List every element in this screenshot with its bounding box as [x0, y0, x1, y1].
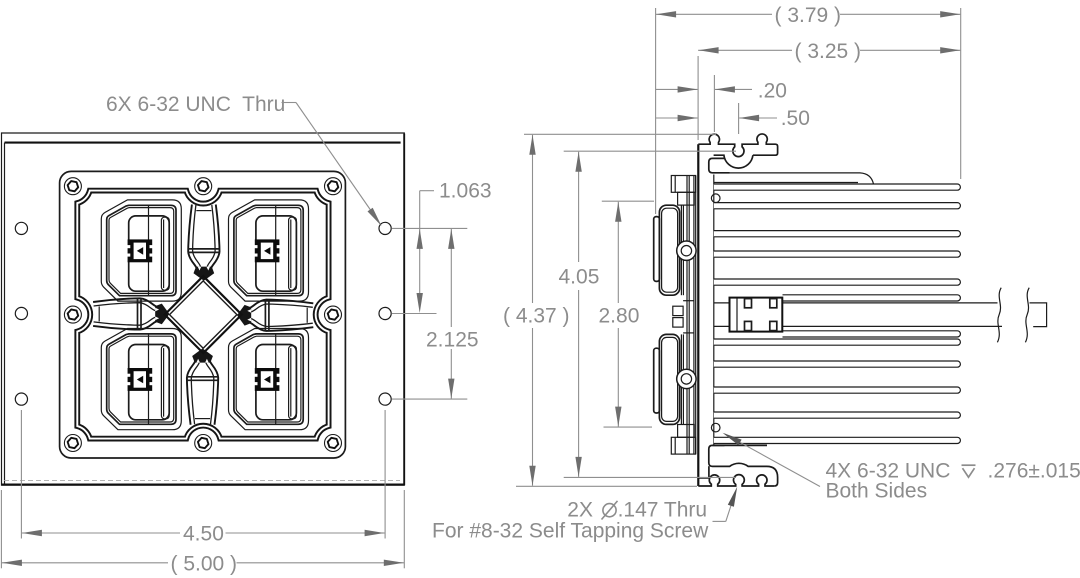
svg-text:2.125: 2.125: [426, 328, 479, 351]
svg-text:( 3.79 ): ( 3.79 ): [775, 4, 842, 27]
svg-text:( 4.37 ): ( 4.37 ): [503, 305, 570, 328]
svg-text:( 3.25 ): ( 3.25 ): [795, 40, 862, 63]
svg-text:.147 Thru: .147 Thru: [618, 499, 708, 522]
svg-text:2X: 2X: [567, 499, 593, 522]
svg-text:4.05: 4.05: [559, 266, 600, 289]
svg-text:For #8-32 Self Tapping Screw: For #8-32 Self Tapping Screw: [432, 520, 709, 543]
svg-text:2.80: 2.80: [599, 305, 640, 328]
svg-text:.50: .50: [781, 107, 810, 130]
svg-text:6X 6-32 UNC Thru: 6X 6-32 UNC Thru: [106, 93, 285, 116]
svg-text:4.50: 4.50: [183, 523, 224, 546]
svg-text:.20: .20: [758, 79, 787, 102]
svg-text:.276±.015: .276±.015: [988, 460, 1080, 483]
svg-text:1.063: 1.063: [439, 180, 492, 203]
svg-text:Both Sides: Both Sides: [826, 480, 928, 503]
svg-text:( 5.00 ): ( 5.00 ): [171, 553, 238, 576]
